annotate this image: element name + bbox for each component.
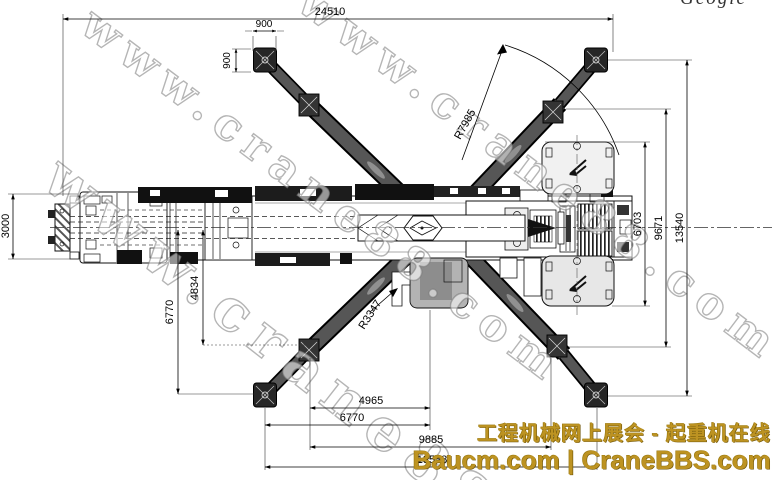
svg-text:24510: 24510 <box>315 6 346 18</box>
mid-float-front-right <box>543 101 563 123</box>
svg-text:6703: 6703 <box>632 212 644 236</box>
outrigger-pad-bottom-left <box>254 383 277 407</box>
cropped-corner-watermark: Geogle <box>680 0 747 10</box>
mid-float-front-left <box>299 94 319 116</box>
svg-text:4834: 4834 <box>189 276 201 300</box>
dim-pad-width: 900 <box>245 19 284 51</box>
outrigger-pad-bottom-right <box>585 383 608 407</box>
svg-text:4965: 4965 <box>359 395 383 407</box>
svg-text:9671: 9671 <box>653 216 665 240</box>
outrigger-pad-top-right <box>585 48 608 72</box>
svg-text:900: 900 <box>256 19 273 30</box>
svg-text:6770: 6770 <box>340 412 364 424</box>
footer-chinese-title: 工程机械网上展会 - 起重机在线 <box>413 423 771 446</box>
site-branding: 工程机械网上展会 - 起重机在线 Baucm.com | CraneBBS.co… <box>413 423 771 476</box>
drawing-canvas: www.crane88.com www.crane88.com www.cran… <box>0 0 777 480</box>
footer-site-urls: Baucm.com | CraneBBS.com <box>413 446 771 476</box>
svg-text:3000: 3000 <box>0 214 12 238</box>
svg-text:6770: 6770 <box>164 300 176 324</box>
outrigger-pad-top-left <box>254 48 277 72</box>
crane-outrigger-drawing: www.crane88.com www.crane88.com www.cran… <box>0 0 777 480</box>
counterweight-lower <box>542 256 614 306</box>
svg-text:900: 900 <box>222 52 233 69</box>
dim-pad-height: 900 <box>222 49 251 72</box>
svg-text:13540: 13540 <box>674 213 686 244</box>
